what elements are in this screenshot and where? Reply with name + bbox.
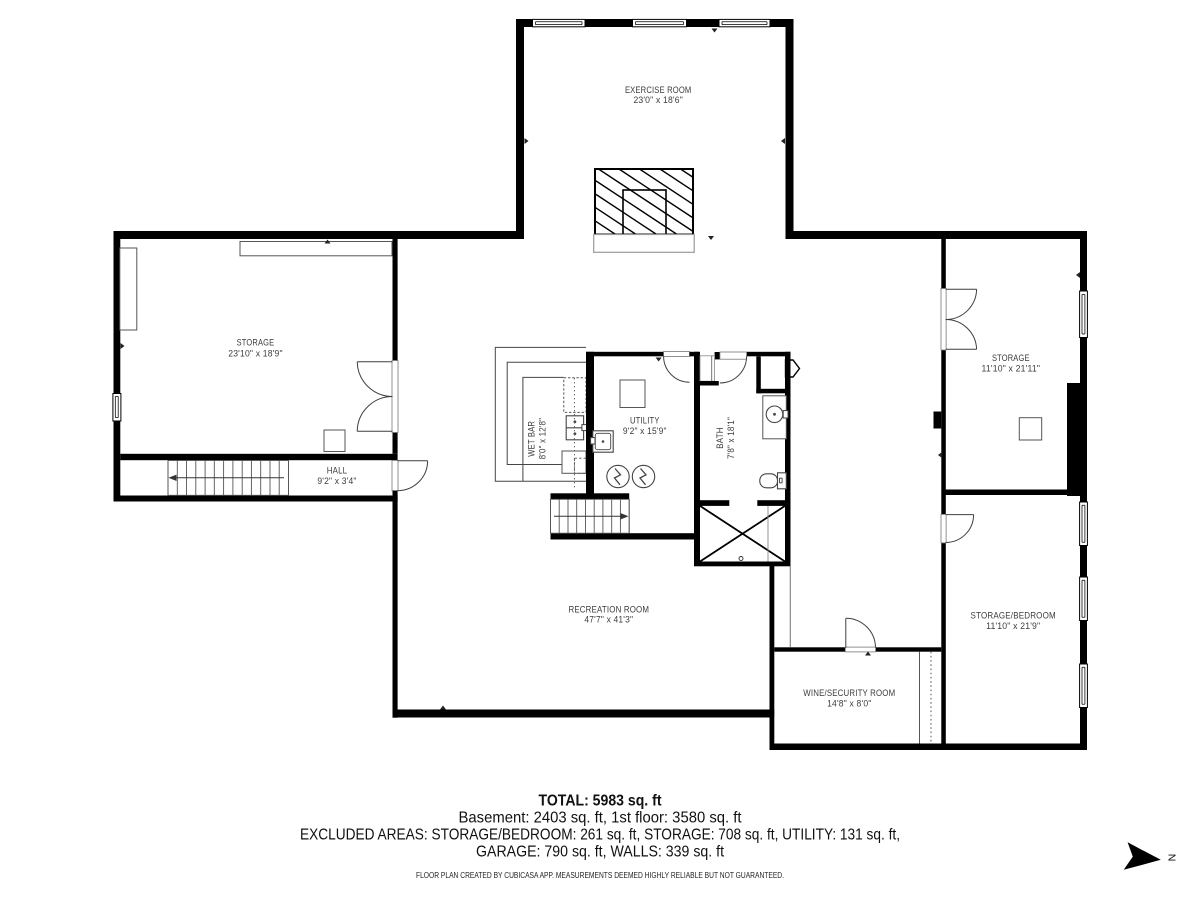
svg-text:EXERCISE ROOM: EXERCISE ROOM (625, 85, 692, 95)
svg-text:WINE/SECURITY ROOM: WINE/SECURITY ROOM (803, 688, 895, 698)
svg-text:RECREATION ROOM: RECREATION ROOM (568, 605, 649, 615)
svg-text:TOTAL: 5983 sq. ft: TOTAL: 5983 sq. ft (539, 793, 663, 810)
svg-text:HALL: HALL (327, 466, 348, 476)
svg-text:FLOOR PLAN CREATED BY CUBICASA: FLOOR PLAN CREATED BY CUBICASA APP. MEAS… (416, 871, 784, 880)
svg-text:8'0" x 12'8": 8'0" x 12'8" (537, 418, 547, 460)
svg-text:7'8" x 18'1": 7'8" x 18'1" (726, 417, 736, 459)
svg-text:23'10" x 18'9": 23'10" x 18'9" (228, 349, 283, 359)
svg-text:47'7" x 41'3": 47'7" x 41'3" (584, 615, 633, 625)
svg-text:BATH: BATH (715, 427, 725, 448)
svg-text:14'8" x 8'0": 14'8" x 8'0" (827, 698, 871, 708)
svg-text:UTILITY: UTILITY (630, 416, 660, 426)
svg-text:11'10" x 21'11": 11'10" x 21'11" (982, 363, 1041, 373)
svg-text:9'2" x 3'4": 9'2" x 3'4" (317, 476, 356, 486)
svg-text:11'10" x 21'9": 11'10" x 21'9" (986, 621, 1040, 631)
svg-text:STORAGE: STORAGE (992, 353, 1030, 363)
svg-text:9'2" x 15'9": 9'2" x 15'9" (623, 426, 667, 436)
svg-text:WET BAR: WET BAR (526, 421, 536, 457)
svg-text:23'0" x 18'6": 23'0" x 18'6" (633, 95, 683, 105)
svg-text:STORAGE/BEDROOM: STORAGE/BEDROOM (971, 611, 1056, 621)
svg-text:GARAGE: 790 sq. ft, WALLS: 339: GARAGE: 790 sq. ft, WALLS: 339 sq. ft (476, 844, 724, 861)
svg-text:Basement: 2403 sq. ft, 1st flo: Basement: 2403 sq. ft, 1st floor: 3580 s… (459, 810, 743, 827)
svg-text:N: N (1165, 854, 1177, 862)
svg-text:STORAGE: STORAGE (237, 338, 275, 348)
svg-text:EXCLUDED AREAS: STORAGE/BEDROO: EXCLUDED AREAS: STORAGE/BEDROOM: 261 sq.… (300, 827, 900, 844)
